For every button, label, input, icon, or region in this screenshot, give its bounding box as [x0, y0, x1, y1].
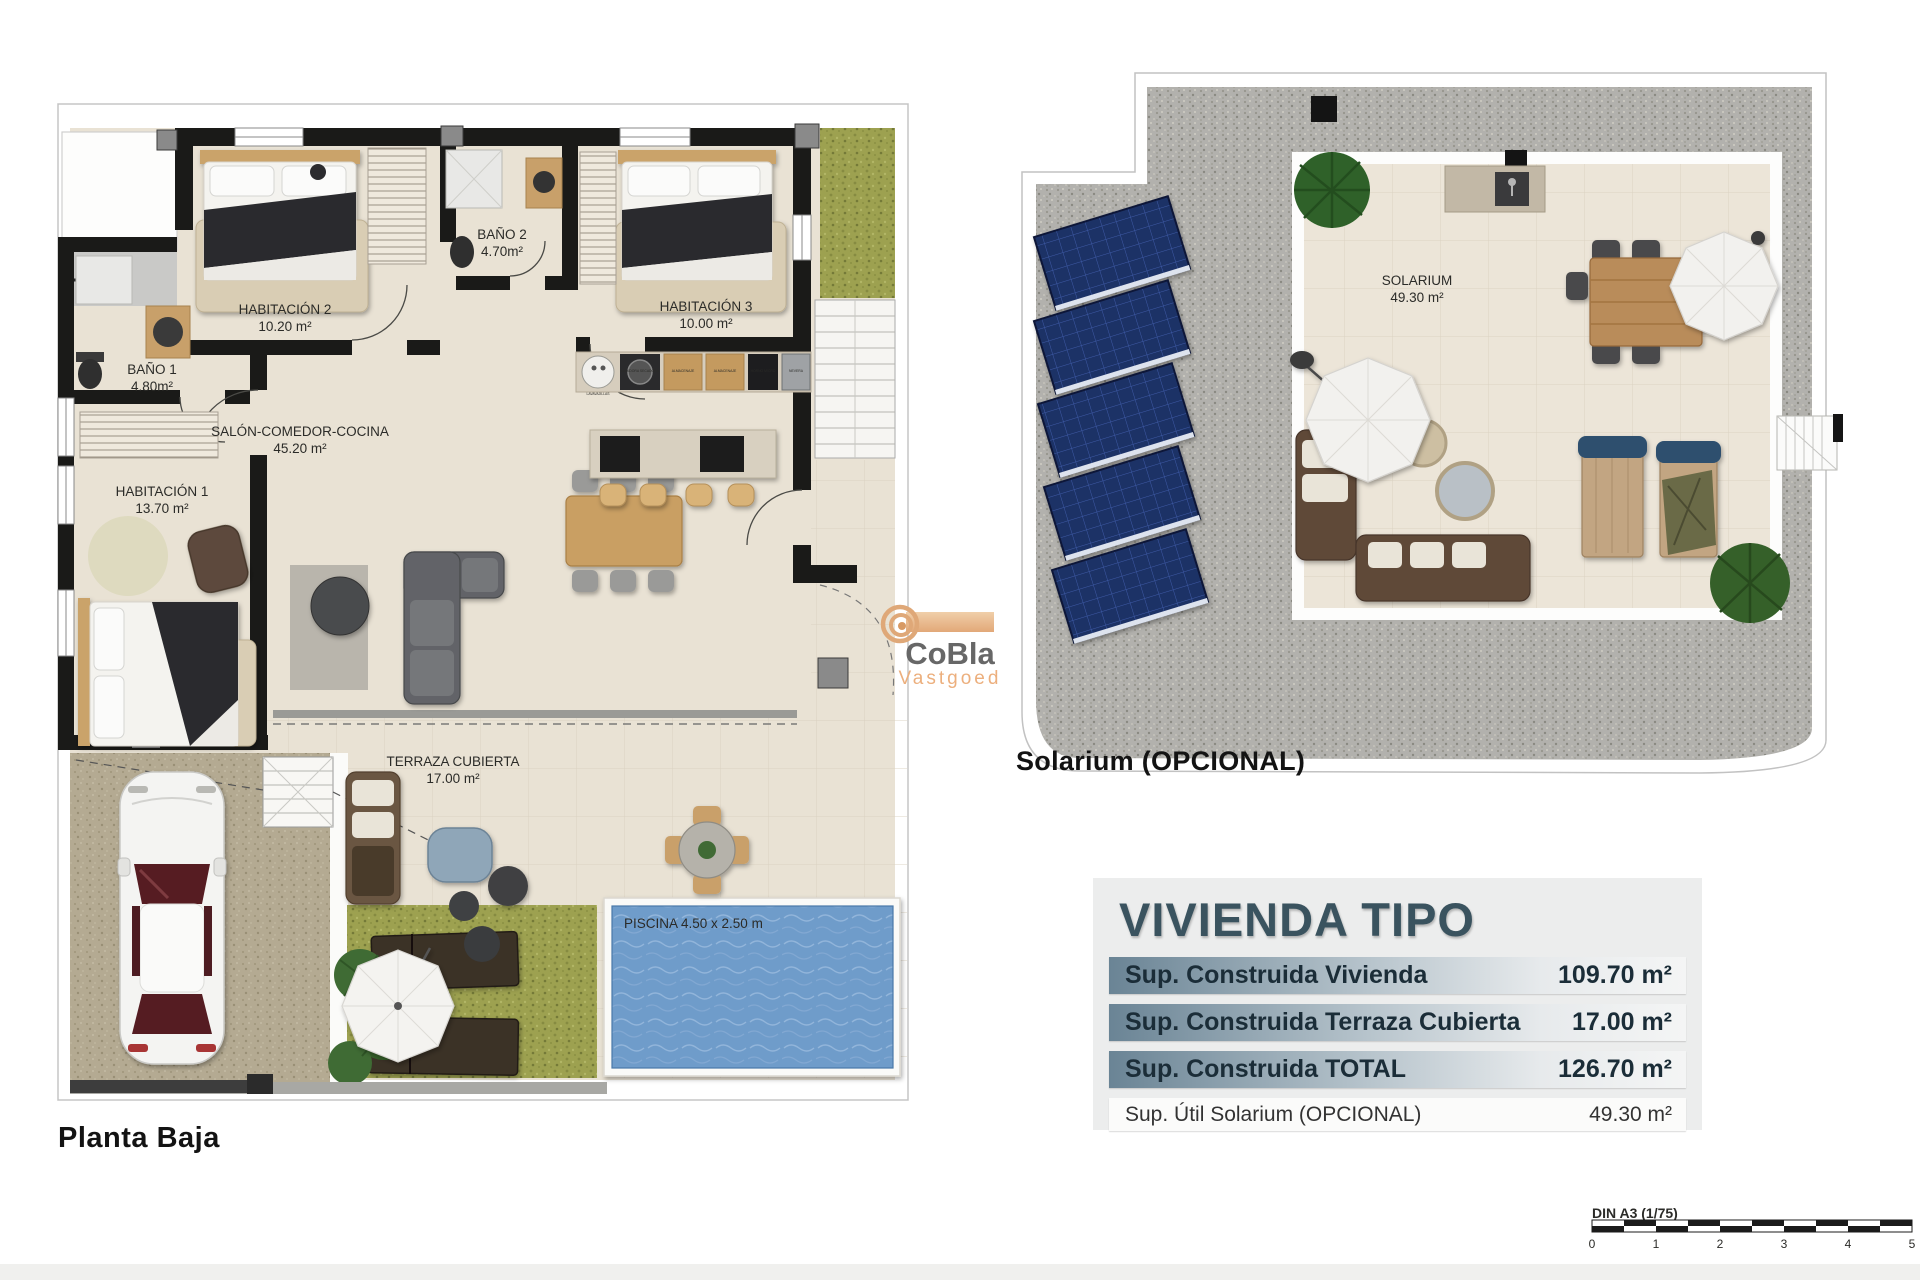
summary-row-label: Sup. Construida Terraza Cubierta [1125, 1008, 1520, 1037]
room-label-terraza: TERRAZA CUBIERTA [386, 754, 519, 769]
room-area-habitacion1: 13.70 m² [135, 501, 189, 516]
summary-row: Sup. Útil Solarium (OPCIONAL) 49.30 m² [1109, 1098, 1686, 1131]
room-area-terraza: 17.00 m² [426, 771, 480, 786]
room-area-habitacion2: 10.20 m² [258, 319, 312, 334]
scale-tick: 4 [1845, 1237, 1852, 1251]
kitchen-unit-label: HORNO MICRO [751, 369, 776, 373]
room-label-habitacion1: HABITACIÓN 1 [116, 484, 209, 499]
pool: PISCINA 4.50 x 2.50 m [604, 898, 900, 1076]
logo-subtitle: Vastgoed [876, 669, 1024, 690]
summary-row-value: 126.70 m² [1558, 1055, 1672, 1084]
scale-tick: 2 [1717, 1237, 1724, 1251]
scale-bar-label: DIN A3 (1/75) [1592, 1205, 1678, 1221]
outdoor-kitchen [1445, 166, 1545, 212]
bed-habitacion3 [616, 150, 786, 312]
kitchen-unit-label: LAVADORA SECADORA [621, 369, 659, 373]
summary-row-label: Sup. Construida TOTAL [1125, 1055, 1406, 1084]
summary-row: Sup. Construida TOTAL 126.70 m² [1109, 1051, 1686, 1088]
planta-baja-plan: PISCINA 4.50 x 2.50 m [58, 104, 908, 1100]
scale-tick: 5 [1909, 1237, 1916, 1251]
summary-row-value: 109.70 m² [1558, 961, 1672, 990]
outdoor-stairs [263, 757, 333, 827]
scale-tick: 1 [1653, 1237, 1660, 1251]
page: PISCINA 4.50 x 2.50 m [0, 0, 1920, 1280]
scale-tick: 0 [1589, 1237, 1596, 1251]
room-area-habitacion3: 10.00 m² [679, 316, 733, 331]
room-label-salon: SALÓN-COMEDOR-COCINA [211, 424, 389, 439]
kitchen-unit-label: ALMACENAJE [672, 369, 695, 373]
side-garden [820, 128, 895, 298]
room-label-bano2: BAÑO 2 [477, 227, 527, 242]
planta-baja-caption: Planta Baja [58, 1122, 220, 1155]
scale-tick: 3 [1781, 1237, 1788, 1251]
room-area-bano2: 4.70m² [481, 244, 524, 259]
parasol [342, 948, 454, 1062]
scale-bar: DIN A3 (1/75) 0 1 2 3 4 5 [1589, 1205, 1916, 1251]
page-bottom-strip [0, 1264, 1920, 1280]
solarium-caption: Solarium (OPCIONAL) [1016, 746, 1305, 777]
wardrobe-habitacion2 [368, 148, 426, 264]
summary-row-value: 49.30 m² [1589, 1103, 1672, 1127]
pool-label: PISCINA 4.50 x 2.50 m [624, 916, 763, 931]
summary-title: VIVIENDA TIPO [1119, 892, 1702, 947]
closet-habitacion3 [580, 152, 616, 284]
solar-panels [1034, 196, 1208, 644]
summary-row-label: Sup. Construida Vivienda [1125, 961, 1427, 990]
summary-row: Sup. Construida Vivienda 109.70 m² [1109, 957, 1686, 994]
roof-marker [1311, 96, 1337, 122]
room-area-solarium: 49.30 m² [1390, 290, 1444, 305]
kitchen-unit-label: LAVAVAJILLAS [586, 392, 610, 396]
kitchen-unit-label: NEVERA [789, 369, 804, 373]
bed-habitacion2 [196, 150, 368, 312]
cobla-logo: CoBla Vastgoed [876, 602, 1024, 690]
spiral-logo-icon [876, 602, 924, 646]
summary-row-label: Sup. Útil Solarium (OPCIONAL) [1125, 1103, 1421, 1127]
logo-bar-right [950, 612, 994, 632]
kitchen-unit-label: ALMACENAJE [714, 369, 737, 373]
room-label-bano1: BAÑO 1 [127, 362, 177, 377]
summary-row: Sup. Construida Terraza Cubierta 17.00 m… [1109, 1004, 1686, 1041]
solarium-plan: SOLARIUM 49.30 m² [1022, 73, 1843, 773]
summary-row-value: 17.00 m² [1572, 1008, 1672, 1037]
room-area-bano1: 4.80m² [131, 379, 174, 394]
exterior-staircase [815, 300, 895, 458]
room-label-solarium: SOLARIUM [1382, 273, 1453, 288]
room-area-salon: 45.20 m² [273, 441, 327, 456]
car [118, 772, 226, 1064]
room-label-habitacion3: HABITACIÓN 3 [660, 299, 753, 314]
room-label-habitacion2: HABITACIÓN 2 [239, 302, 332, 317]
solarium-stairs [1777, 414, 1843, 470]
summary-panel: VIVIENDA TIPO Sup. Construida Vivienda 1… [1093, 878, 1702, 1130]
